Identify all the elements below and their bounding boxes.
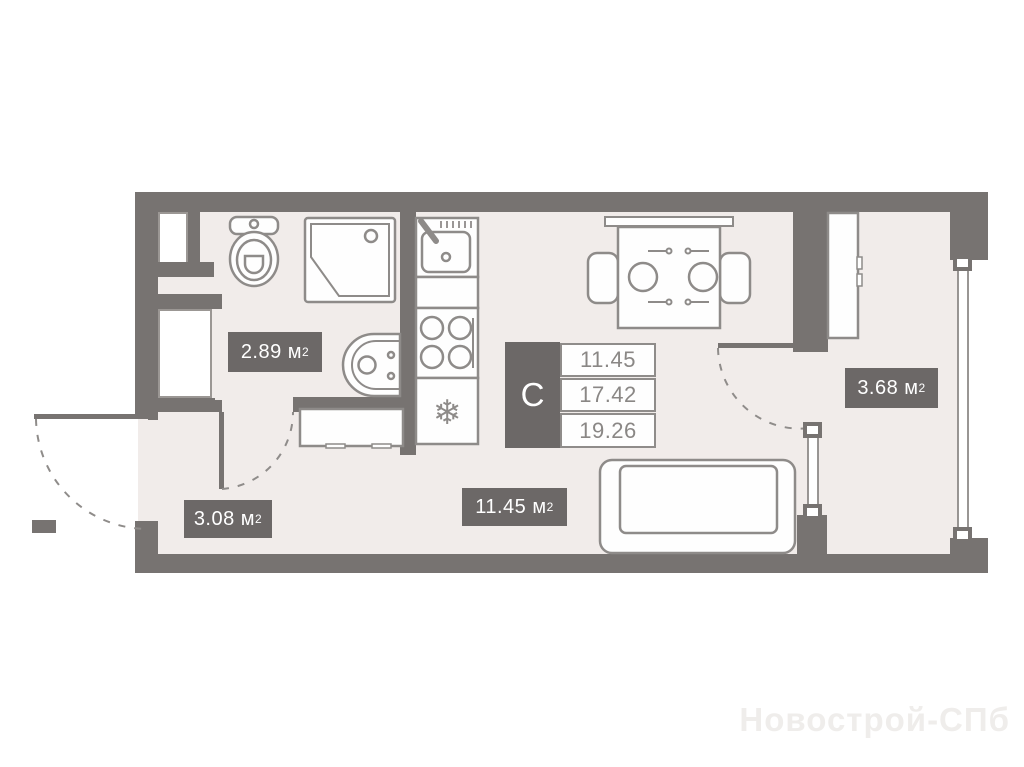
area-value: 2.89: [241, 341, 282, 364]
area-label-balcony: 3.68м2: [845, 368, 938, 408]
area-unit: м: [288, 341, 302, 364]
area-cell-total: 19.26: [560, 413, 656, 448]
shaft-wall-bar-1: [158, 262, 214, 277]
entrance-door-swing-arc: [36, 419, 149, 529]
area-value: 3.08: [194, 508, 235, 531]
shaft-wall-strip: [188, 212, 200, 266]
area-value: 3.68: [857, 377, 898, 400]
floor-plan: ❄: [0, 0, 1024, 767]
area-label-bathroom: 2.89м2: [228, 332, 322, 372]
shaft-wall-bar-3: [158, 398, 215, 412]
wall-bathroom-bottom: [293, 397, 403, 412]
apartment-type-badge: С: [505, 342, 560, 448]
area-unit: м: [532, 496, 546, 519]
duct-shaft-upper: [158, 212, 188, 264]
area-cell-apartment: 17.42: [560, 378, 656, 412]
exterior-wall-nub: [32, 520, 56, 533]
wall-corner-bottom-right: [950, 538, 988, 573]
watermark: Новострой-СПб: [739, 701, 1010, 739]
area-label-hallway: 3.08м2: [184, 500, 272, 538]
wall-bottom: [135, 554, 988, 573]
entrance-floor-patch: [138, 418, 158, 521]
bathroom-door-frame-notch: [208, 400, 222, 412]
shaft-wall-bar-2: [158, 294, 222, 309]
wall-top: [135, 192, 988, 212]
area-cell-living: 11.45: [560, 343, 656, 377]
area-value: 11.45: [475, 496, 526, 519]
area-unit: м: [241, 508, 255, 531]
duct-shaft-lower: [158, 309, 212, 398]
wall-balcony-step: [797, 515, 827, 554]
area-label-living-room: 11.45м2: [462, 488, 567, 526]
area-unit: м: [904, 377, 918, 400]
wall-kitchen-divider: [400, 212, 416, 455]
wall-balcony-divider: [793, 212, 828, 352]
wall-left-upper: [135, 192, 158, 418]
entrance-door-leaf: [34, 414, 150, 419]
entry-door-frame-tab: [148, 413, 158, 420]
wall-corner-top-right: [950, 212, 988, 260]
